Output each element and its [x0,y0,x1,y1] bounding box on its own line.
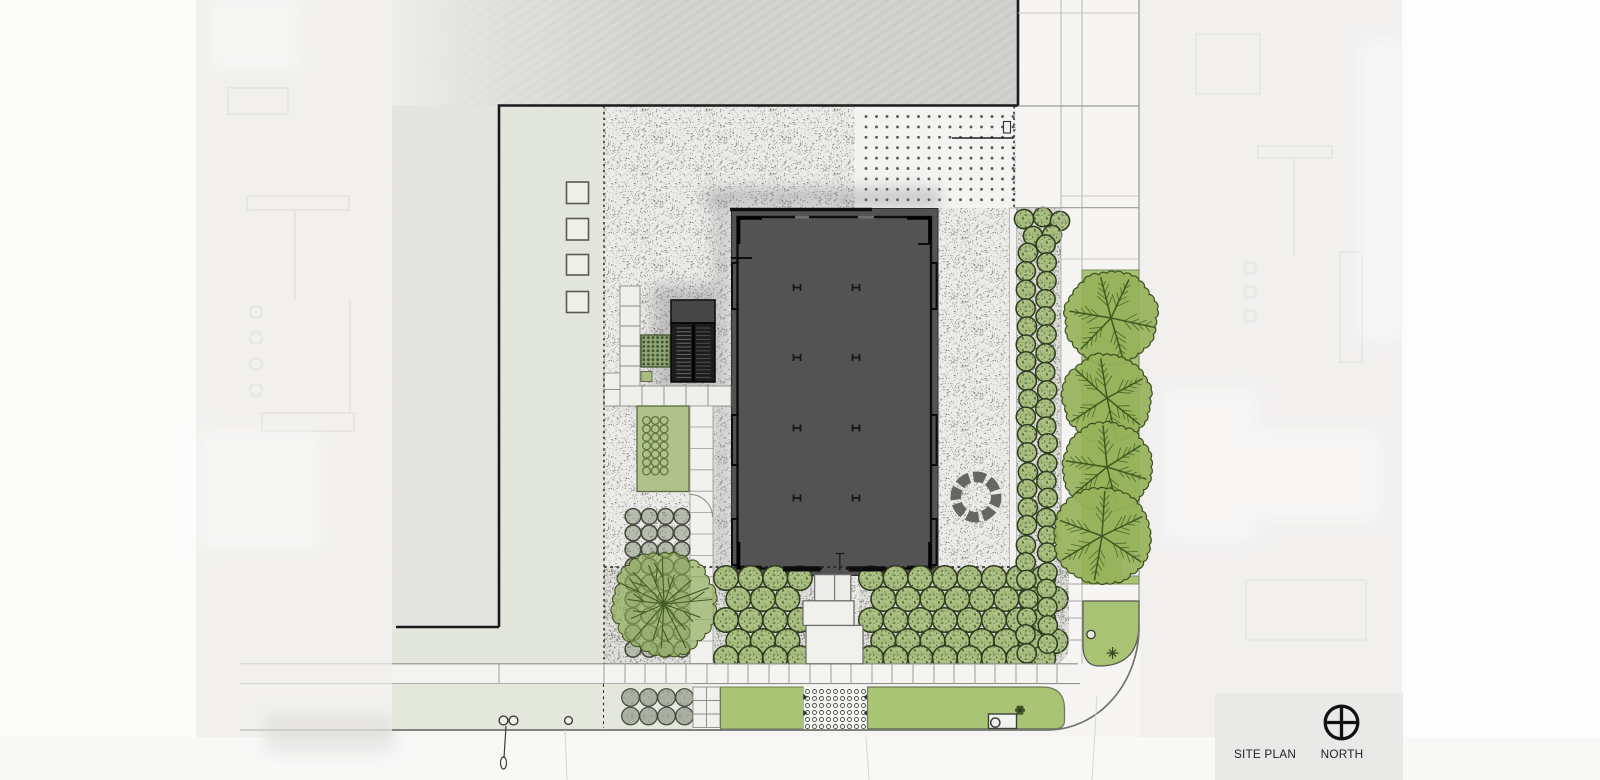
svg-text:SITE PLAN: SITE PLAN [1234,747,1296,761]
svg-text:NORTH: NORTH [1321,747,1364,761]
